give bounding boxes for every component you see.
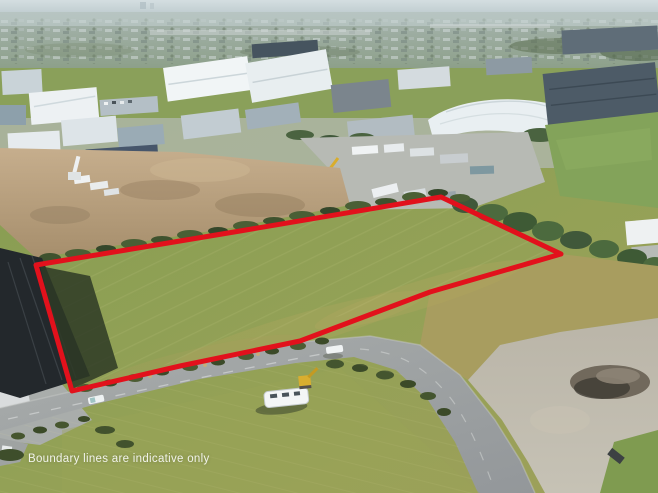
green-field-right: [545, 112, 658, 208]
aerial-scene: [0, 0, 658, 493]
watermark-text: Boundary lines are indicative only: [28, 453, 210, 465]
aerial-photo: Boundary lines are indicative only: [0, 0, 658, 493]
